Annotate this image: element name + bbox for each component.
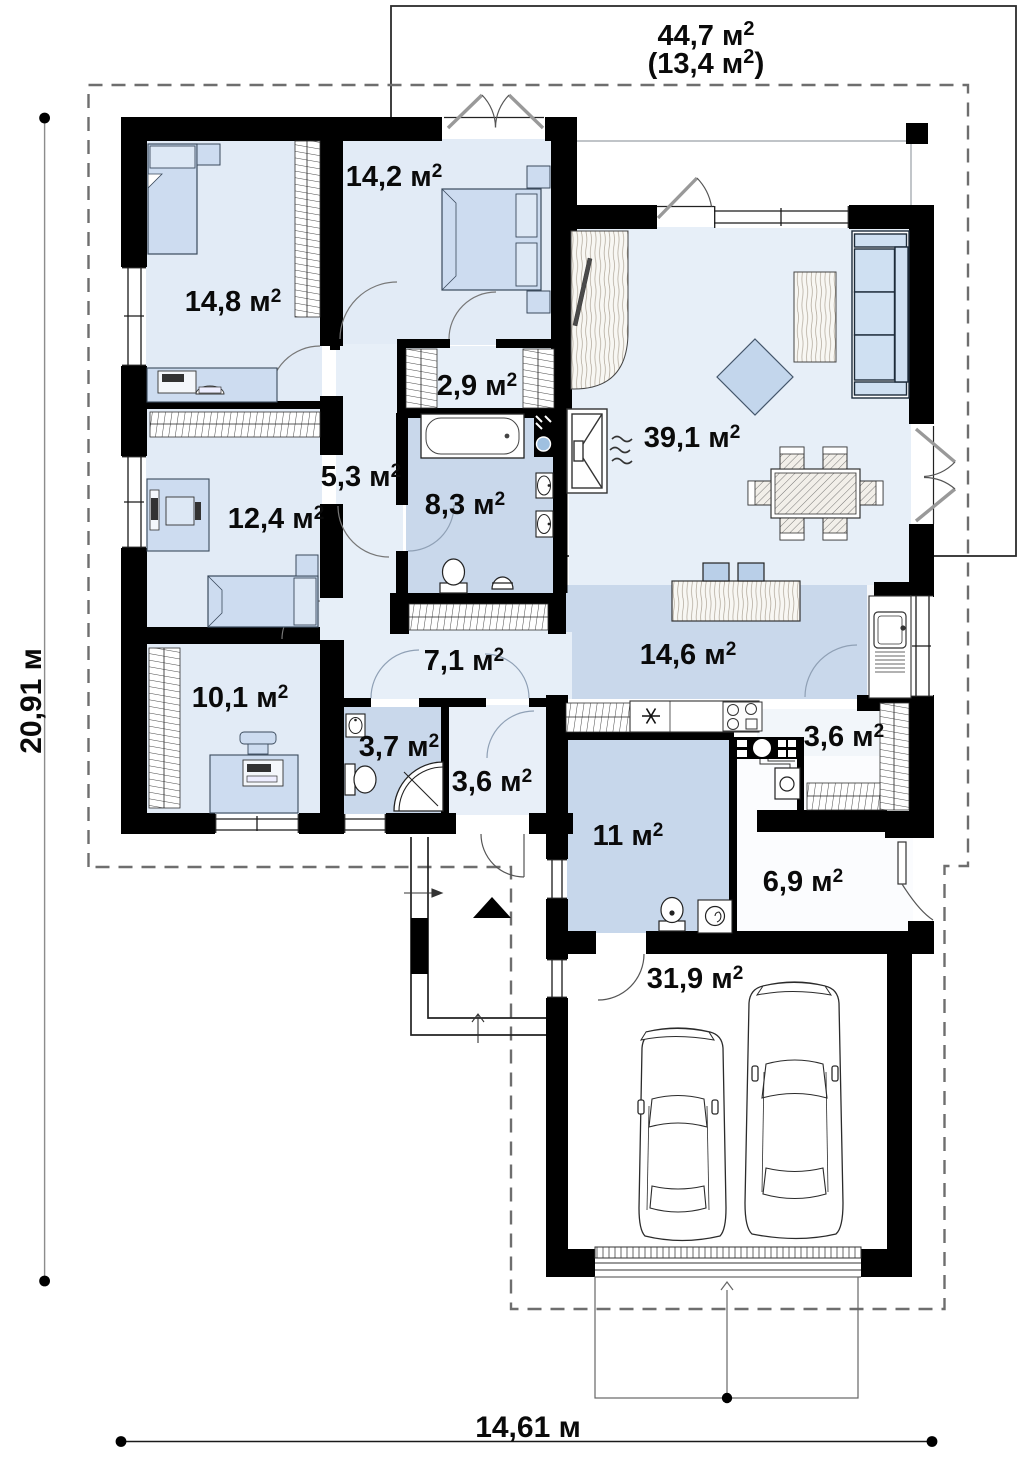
svg-text:14,8 м2: 14,8 м2	[185, 286, 282, 318]
svg-text:14,2 м2: 14,2 м2	[346, 161, 443, 193]
svg-text:20,91 м: 20,91 м	[15, 648, 48, 754]
svg-text:3,6 м2: 3,6 м2	[452, 766, 532, 798]
svg-text:5,3 м2: 5,3 м2	[321, 461, 401, 493]
svg-text:14,61 м: 14,61 м	[475, 1411, 581, 1444]
svg-text:11 м2: 11 м2	[593, 820, 664, 852]
svg-text:8,3 м2: 8,3 м2	[425, 489, 505, 521]
svg-text:12,4 м2: 12,4 м2	[228, 503, 325, 535]
svg-text:6,9 м2: 6,9 м2	[763, 866, 843, 898]
svg-text:3,7 м2: 3,7 м2	[359, 731, 439, 763]
svg-text:7,1 м2: 7,1 м2	[424, 645, 504, 677]
svg-text:44,7 м2: 44,7 м2	[657, 18, 754, 52]
svg-text:31,9 м2: 31,9 м2	[647, 963, 744, 995]
svg-text:3,6 м2: 3,6 м2	[804, 721, 884, 753]
svg-text:10,1 м2: 10,1 м2	[192, 682, 289, 714]
svg-text:39,1 м2: 39,1 м2	[644, 422, 741, 454]
svg-text:2,9 м2: 2,9 м2	[437, 370, 517, 402]
svg-text:14,6 м2: 14,6 м2	[640, 639, 737, 671]
